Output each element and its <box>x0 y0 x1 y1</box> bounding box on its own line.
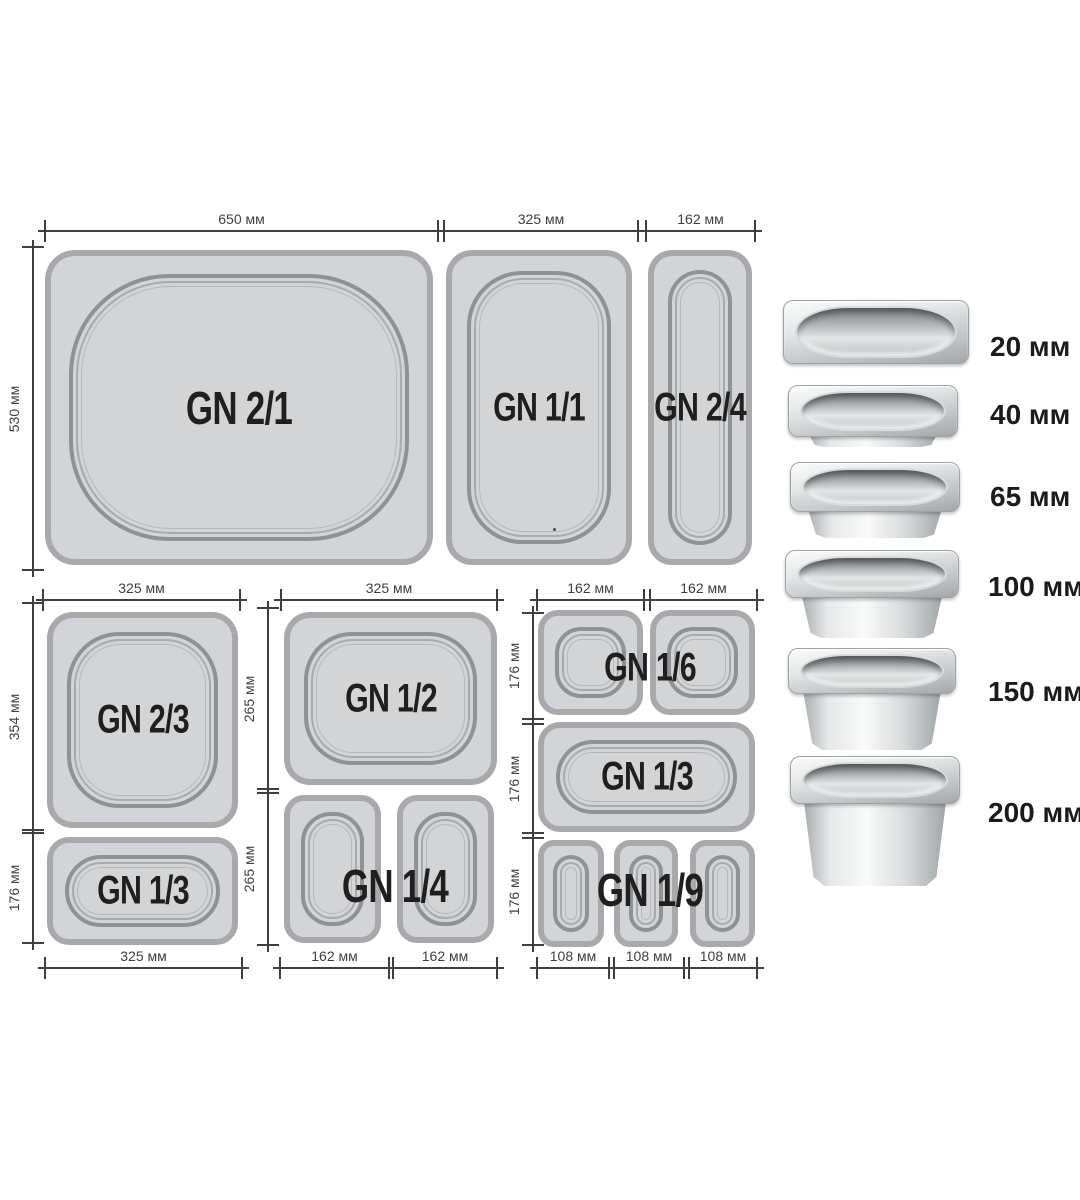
pan-label: GN 1/3 <box>97 869 189 914</box>
pan-label: GN 2/4 <box>654 385 746 430</box>
photo-pan-200mm <box>790 756 960 804</box>
depth-label-65mm: 65 мм <box>990 481 1070 513</box>
dim-265mm-b: 265 мм <box>267 786 269 952</box>
photo-pan-20mm <box>783 300 969 364</box>
pan-body <box>800 794 950 886</box>
pan-gn-1-2: GN 1/2 <box>284 612 497 785</box>
photo-pan-150mm <box>788 648 956 694</box>
group-label-gn-1-6: GN 1/6 <box>604 646 696 691</box>
depth-label-40mm: 40 мм <box>990 399 1070 431</box>
pan-gn-1-3-right: GN 1/3 <box>538 722 755 832</box>
dim-650mm-top: 650 мм <box>38 230 445 232</box>
pan-gn-2-3: GN 2/3 <box>47 612 238 828</box>
pan-label: GN 1/1 <box>493 385 585 430</box>
gn-pan-size-chart: GN 2/1 GN 1/1 GN 2/4 GN 2/3 GN 1/3 GN 1/… <box>0 0 1080 1200</box>
dim-162mm-bottom-b: 162 мм <box>386 967 504 969</box>
pan-label: GN 2/1 <box>186 381 292 435</box>
speck <box>553 528 556 531</box>
photo-pan-40mm <box>788 385 958 437</box>
pan-gn-1-3-left: GN 1/3 <box>47 837 238 945</box>
dim-108mm-bottom-c: 108 мм <box>682 967 764 969</box>
dim-162mm-top: 162 мм <box>639 230 762 232</box>
pan-opening <box>799 558 945 590</box>
pan-label: GN 2/3 <box>97 698 189 743</box>
pan-label: GN 1/2 <box>345 676 437 721</box>
pan-rim <box>790 462 960 512</box>
dim-176mm-right-b: 176 мм <box>532 717 534 840</box>
group-label-gn-1-4: GN 1/4 <box>342 859 448 913</box>
dim-176mm-right-c: 176 мм <box>532 831 534 952</box>
pan-opening <box>804 470 946 504</box>
pan-rim <box>790 756 960 804</box>
dim-176mm-left: 176 мм <box>32 826 34 950</box>
pan-opening-outline <box>553 855 589 932</box>
dim-325mm-left-group: 325 мм <box>36 599 247 601</box>
pan-opening <box>797 308 955 356</box>
dim-162mm-right-a: 162 мм <box>530 599 651 601</box>
pan-rim <box>785 550 959 598</box>
depth-label-100mm: 100 мм <box>988 571 1080 603</box>
dim-325mm-mid-group: 325 мм <box>274 599 504 601</box>
pan-opening <box>804 764 946 796</box>
pan-rim <box>788 648 956 694</box>
pan-gn-1-1: GN 1/1 <box>446 250 632 565</box>
dim-530mm: 530 мм <box>32 240 34 577</box>
photo-pan-100mm <box>785 550 959 598</box>
pan-opening <box>802 393 944 429</box>
dim-108mm-bottom-b: 108 мм <box>607 967 691 969</box>
dim-325mm-bottom-left: 325 мм <box>38 967 249 969</box>
pan-gn-1-9-a <box>538 840 604 947</box>
group-label-gn-1-9: GN 1/9 <box>597 863 703 917</box>
depth-label-200mm: 200 мм <box>988 797 1080 829</box>
dim-354mm: 354 мм <box>32 596 34 837</box>
photo-pan-65mm <box>790 462 960 512</box>
dim-176mm-right-a: 176 мм <box>532 606 534 726</box>
dim-325mm-top: 325 мм <box>437 230 645 232</box>
pan-rim <box>788 385 958 437</box>
dim-162mm-right-b: 162 мм <box>643 599 764 601</box>
pan-gn-2-4: GN 2/4 <box>648 250 752 565</box>
pan-rim <box>783 300 969 364</box>
pan-label: GN 1/3 <box>601 755 693 800</box>
pan-opening <box>802 656 942 686</box>
depth-label-20mm: 20 мм <box>990 331 1070 363</box>
pan-opening-outline <box>705 855 740 932</box>
dim-108mm-bottom-a: 108 мм <box>530 967 616 969</box>
dim-162mm-bottom-a: 162 мм <box>273 967 396 969</box>
dim-265mm-a: 265 мм <box>267 601 269 796</box>
pan-gn-2-1: GN 2/1 <box>45 250 433 565</box>
depth-label-150mm: 150 мм <box>988 676 1080 708</box>
